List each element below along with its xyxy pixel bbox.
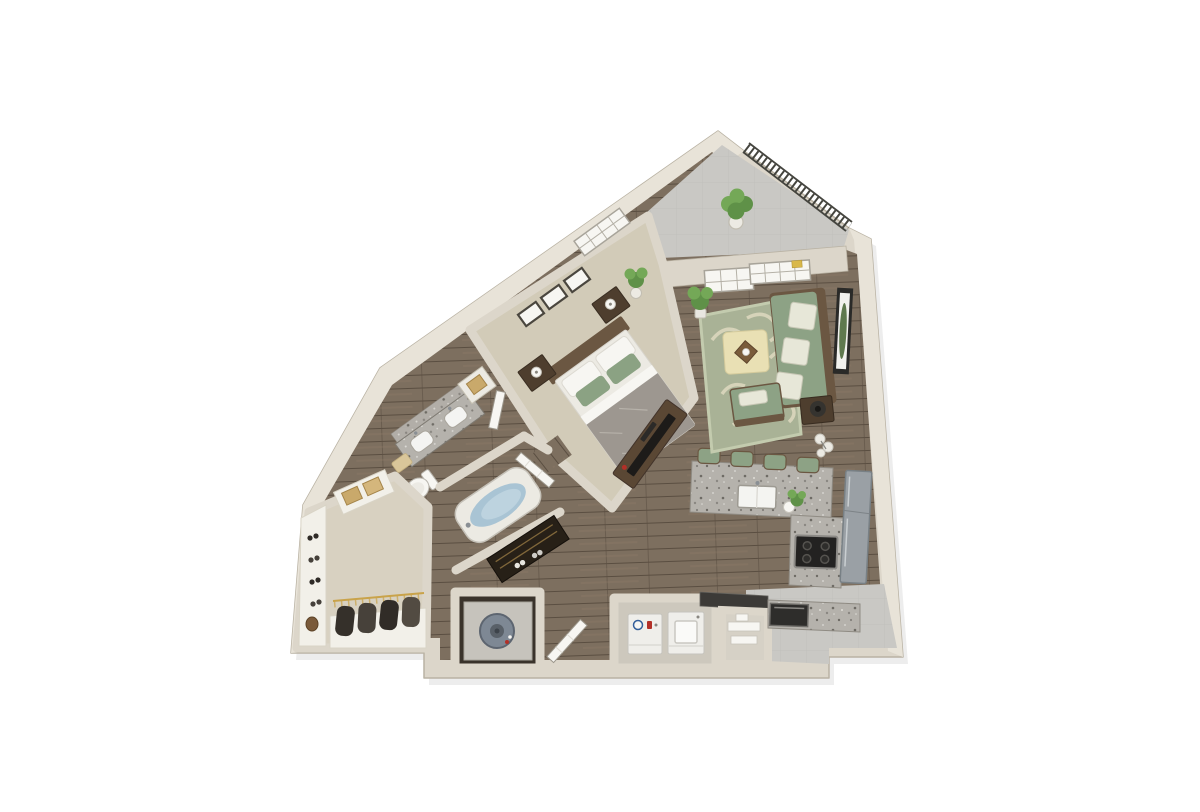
stove-top	[794, 535, 837, 568]
cup	[742, 348, 749, 355]
plant-foliage	[798, 491, 806, 499]
window-sill-decor	[792, 260, 802, 268]
throw-pillow	[781, 337, 810, 365]
shoe	[308, 557, 313, 562]
ottoman-table	[723, 330, 770, 375]
dishwasher	[770, 603, 809, 626]
plant-pot	[631, 288, 642, 299]
shoe	[315, 577, 320, 582]
heater-label	[508, 635, 512, 639]
barstool	[731, 451, 754, 467]
washer-dial	[634, 621, 643, 630]
fridge	[840, 470, 872, 583]
burner	[803, 542, 811, 550]
plant-foliage	[625, 269, 636, 280]
washer-button	[647, 621, 652, 629]
dryer-door	[675, 621, 697, 643]
water-heater	[480, 614, 514, 648]
barstool	[797, 457, 820, 473]
barstool	[764, 454, 787, 470]
side-table	[800, 395, 835, 424]
balcony-door	[704, 267, 753, 292]
shoe	[313, 533, 318, 538]
plant-foliage	[728, 203, 745, 220]
stool-cushion	[764, 454, 787, 470]
garment	[357, 603, 377, 634]
storage-box	[736, 614, 748, 621]
shelf	[728, 622, 760, 631]
lamp-globe	[815, 434, 825, 444]
plant-pot	[695, 309, 706, 318]
plant-foliage	[688, 287, 701, 300]
burner	[821, 555, 829, 563]
plant-foliage	[730, 189, 745, 204]
hanging-clothes	[334, 605, 355, 637]
dryer	[668, 612, 704, 654]
shoe	[309, 579, 314, 584]
floor-plan-canvas	[0, 0, 1200, 812]
burner	[821, 542, 829, 550]
heater-warning	[505, 640, 509, 644]
stool-cushion	[797, 457, 820, 473]
hall-closet	[722, 610, 768, 664]
garment	[401, 597, 420, 628]
decor-box	[792, 260, 802, 268]
hanging-clothes	[401, 597, 420, 628]
dryer-knob	[697, 616, 700, 619]
shoe	[310, 601, 315, 606]
garment	[378, 599, 399, 631]
floor-plan-page	[0, 0, 1200, 812]
shoe	[316, 599, 321, 604]
sink-divider	[757, 486, 758, 508]
shoe	[307, 535, 312, 540]
handbag	[306, 617, 318, 631]
throw-pillow	[788, 302, 817, 330]
washer-body	[628, 614, 662, 654]
fridge-body	[840, 470, 872, 583]
shoe	[314, 555, 319, 560]
dishwasher-handle	[774, 607, 804, 608]
stool-cushion	[731, 451, 754, 467]
shelf	[731, 636, 757, 644]
lamp-globe	[817, 449, 825, 457]
washer-knob	[655, 624, 658, 627]
heater-valve	[495, 629, 500, 634]
plant-foliage	[701, 287, 713, 299]
plant-foliage	[637, 268, 648, 279]
hanging-clothes	[378, 599, 399, 631]
accent-chair	[730, 383, 785, 428]
burner	[803, 555, 811, 563]
plant-foliage	[788, 490, 797, 499]
garment	[334, 605, 355, 637]
washer	[628, 614, 662, 654]
hanging-clothes	[357, 603, 377, 634]
stove	[794, 535, 837, 568]
